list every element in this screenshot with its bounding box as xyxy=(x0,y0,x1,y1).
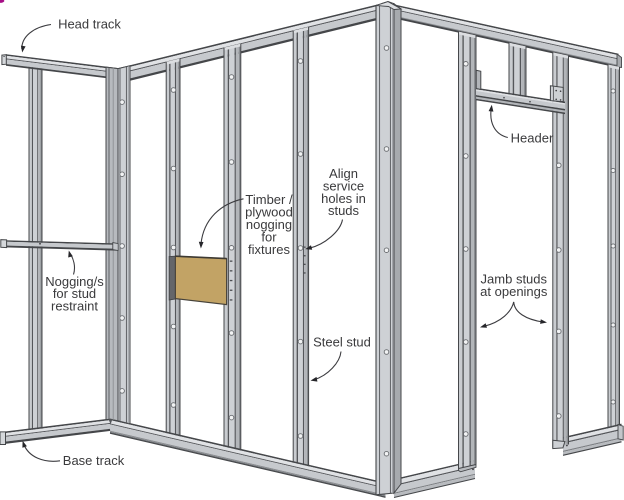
svg-text:Head track: Head track xyxy=(58,17,121,32)
svg-text:fixtures: fixtures xyxy=(248,242,290,257)
svg-text:Steel stud: Steel stud xyxy=(313,335,371,350)
svg-text:Header: Header xyxy=(511,131,554,146)
svg-text:studs: studs xyxy=(328,203,360,218)
svg-text:Base track: Base track xyxy=(63,453,125,468)
svg-text:restraint: restraint xyxy=(51,299,98,314)
svg-text:at openings: at openings xyxy=(480,284,548,299)
